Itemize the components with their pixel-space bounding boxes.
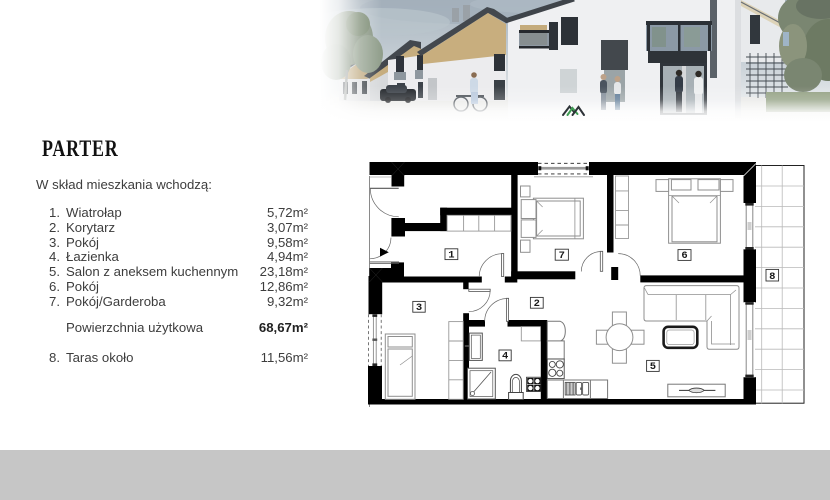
- svg-text:1: 1: [448, 249, 454, 261]
- svg-text:4: 4: [502, 351, 508, 363]
- svg-text:3: 3: [416, 302, 422, 314]
- svg-text:7: 7: [559, 250, 565, 262]
- svg-text:5: 5: [650, 361, 656, 373]
- svg-text:2: 2: [534, 298, 540, 310]
- svg-text:8: 8: [769, 271, 775, 283]
- svg-text:6: 6: [681, 250, 687, 262]
